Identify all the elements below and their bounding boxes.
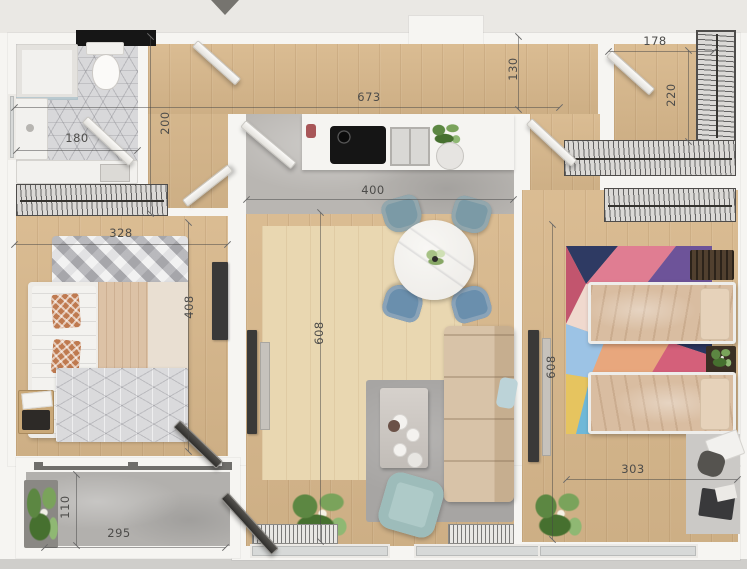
bedroom2-head-shelf	[690, 250, 734, 280]
tv-living	[247, 330, 257, 434]
dim-line-673	[14, 107, 560, 108]
dim-line-295	[44, 547, 226, 548]
dressing-wardrobe-wide	[564, 140, 736, 176]
nightstand-papers	[21, 390, 53, 409]
dim-label-corridor-length: 673	[352, 90, 386, 104]
dim-label-balcony-width: 295	[102, 526, 136, 540]
dim-line-200	[150, 36, 151, 214]
bathtub-basin	[100, 164, 130, 182]
dim-label-bedroom1-depth: 408	[182, 290, 196, 324]
dim-label-bedroom1-width: 328	[104, 226, 138, 240]
dim-line-328	[14, 244, 228, 245]
wall-notch	[409, 16, 483, 46]
bedroom1-media-unit	[212, 262, 228, 340]
counter-decor	[306, 124, 316, 138]
railing-post	[128, 462, 138, 470]
hall-closet	[16, 184, 168, 216]
background-top-strip	[0, 0, 747, 33]
railing-post	[222, 462, 232, 470]
radiator	[448, 524, 514, 544]
nightstand-plant	[708, 346, 734, 370]
shower	[16, 44, 78, 100]
dim-label-hall-depth: 200	[158, 106, 172, 140]
nightstand-tray	[22, 410, 50, 430]
vanity-faucet	[26, 124, 34, 132]
dim-label-bedroom2-width: 303	[616, 462, 650, 476]
sink-divider	[409, 129, 411, 164]
dim-label-corridor-depth: 130	[506, 52, 520, 86]
floor-plan: 673 400 130 178 220 200 180 328 408 608 …	[0, 0, 747, 569]
bedroom1-rug	[56, 368, 188, 442]
bed-b-pillow	[700, 378, 730, 430]
background-bottom-strip	[0, 559, 747, 569]
tv-bedroom2	[528, 330, 539, 462]
dim-line-220	[688, 50, 689, 142]
dim-line-180	[16, 150, 138, 151]
dark-plate	[388, 420, 400, 432]
railing-post	[34, 462, 43, 470]
toilet-bowl	[92, 54, 120, 90]
kitchen-bowl	[436, 142, 464, 170]
centerpiece-dot	[432, 256, 438, 262]
entrance-arrow-icon	[211, 0, 239, 15]
dim-label-balcony-depth: 110	[58, 490, 72, 524]
dim-line-303	[566, 479, 738, 480]
dim-label-bathroom-width: 180	[60, 131, 94, 145]
bedroom2-wardrobe	[604, 188, 736, 222]
plate	[407, 452, 423, 468]
dim-label-living-depth: 608	[312, 316, 326, 350]
dim-line-178	[608, 51, 714, 52]
dim-label-dressing-width: 178	[638, 34, 672, 48]
bedroom2-window	[538, 544, 698, 558]
plate	[393, 443, 407, 457]
planter-greens	[22, 478, 62, 550]
dim-label-dressing-depth: 220	[664, 78, 678, 112]
dim-line-400	[246, 199, 514, 200]
bedroom2-plant	[528, 486, 588, 544]
sofa-cushion-lines	[444, 326, 514, 502]
dim-line-110	[76, 474, 77, 546]
plate	[406, 428, 420, 442]
dressing-floor	[614, 44, 698, 144]
accent-pillow	[51, 293, 81, 329]
dim-line-408	[188, 222, 189, 452]
dim-label-bedroom2-depth: 608	[544, 350, 558, 384]
bed-a-pillow	[700, 288, 730, 340]
tv-console-living	[260, 342, 270, 430]
dim-line-608-living	[320, 212, 321, 542]
dim-label-living-width: 400	[356, 183, 390, 197]
cooktop	[330, 126, 386, 164]
